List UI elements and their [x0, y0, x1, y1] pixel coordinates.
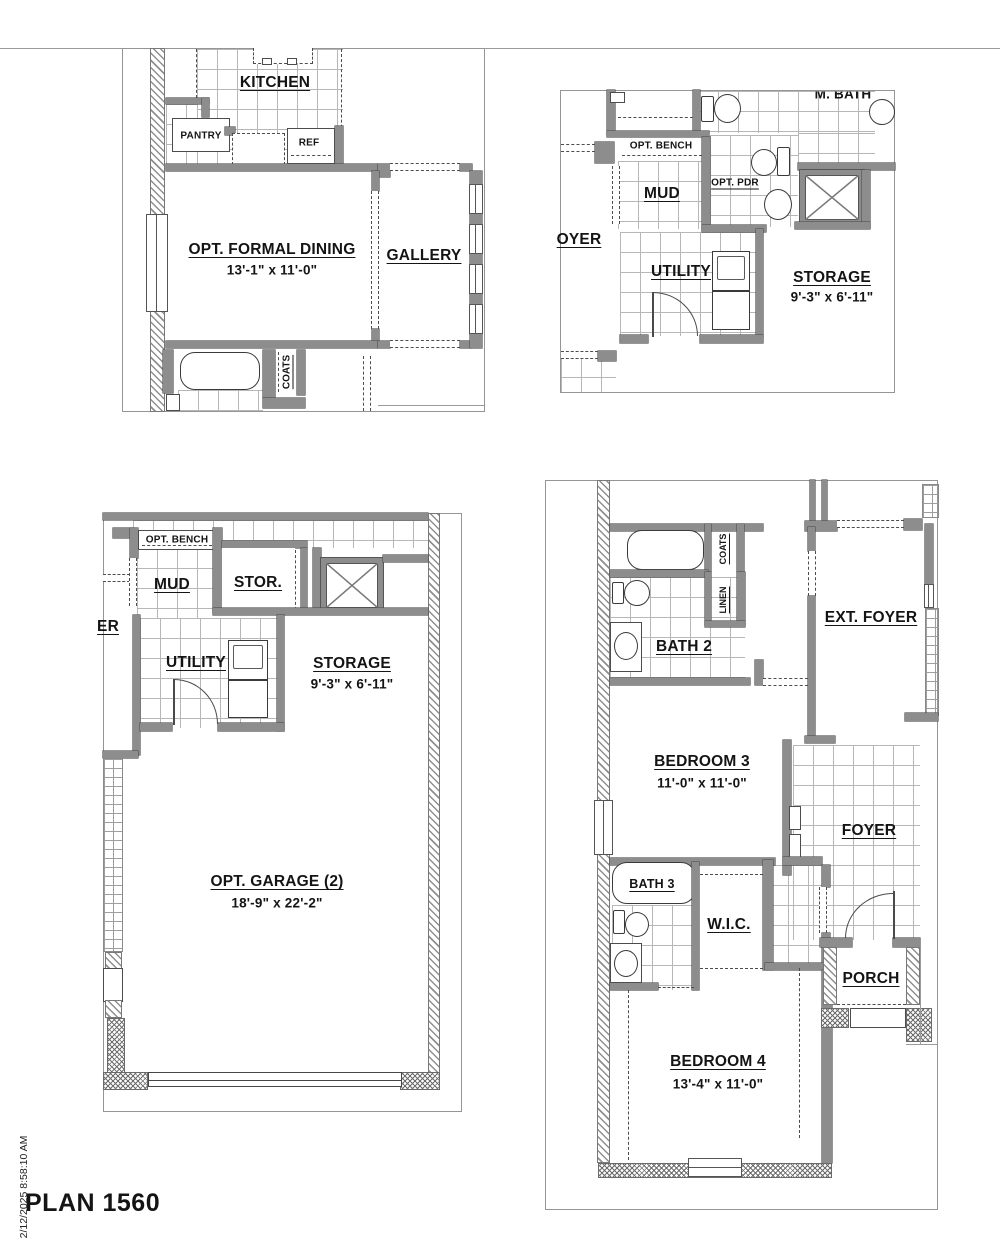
- wall: [202, 98, 209, 117]
- window: [469, 224, 483, 254]
- garage-dims: 18'-9" x 22'-2": [231, 896, 322, 911]
- cased-opening: [390, 163, 460, 171]
- wall: [862, 170, 870, 228]
- cased-opening: [561, 144, 595, 152]
- window: [146, 214, 168, 312]
- wall: [905, 713, 938, 721]
- wall: [378, 164, 390, 177]
- shower: [321, 558, 383, 613]
- bath2-label: BATH 2: [656, 638, 712, 656]
- garage-door: [148, 1072, 402, 1087]
- toilet-tank: [777, 147, 790, 176]
- kitchen-label: KITCHEN: [240, 74, 310, 92]
- cased-opening: [561, 351, 598, 359]
- opt-bench-label: OPT. BENCH: [630, 141, 693, 152]
- toilet-bowl: [751, 149, 777, 176]
- stor-label: STOR.: [234, 574, 282, 592]
- wall: [822, 480, 827, 522]
- dashed-door: [295, 550, 296, 610]
- wall: [610, 678, 750, 685]
- island-seat: [287, 58, 297, 65]
- porch-wall-hatch: [906, 947, 920, 1005]
- wall: [297, 350, 305, 395]
- washer-door: [717, 256, 745, 280]
- bedroom3-dims: 11'-0" x 11'-0": [657, 776, 747, 791]
- toilet-bowl: [624, 580, 650, 606]
- wall: [702, 137, 710, 229]
- refrigerator-label: REF: [299, 138, 320, 149]
- storage-dims: 9'-3" x 6'-11": [311, 677, 394, 692]
- dashed-line: [196, 49, 197, 98]
- dashed-line: [658, 987, 694, 988]
- dashed-line: [799, 968, 800, 1138]
- plan-title: PLAN 1560: [25, 1189, 160, 1218]
- wall: [103, 751, 138, 758]
- washer: [712, 251, 750, 291]
- pedestal-sink: [764, 189, 792, 220]
- washer: [228, 640, 268, 680]
- wall: [893, 938, 920, 947]
- wall: [925, 524, 933, 584]
- wall: [103, 513, 428, 520]
- wall: [378, 341, 390, 348]
- window-wall: [922, 484, 939, 518]
- sink: [614, 632, 638, 660]
- mud-label: MUD: [644, 185, 680, 203]
- cased-opening: [103, 574, 130, 582]
- wall: [705, 572, 711, 625]
- bedroom4-label: BEDROOM 4: [670, 1053, 766, 1071]
- bath3-label: BATH 3: [629, 877, 674, 891]
- wall: [763, 860, 773, 970]
- wall: [795, 222, 870, 229]
- wall: [213, 528, 222, 612]
- door-leaf: [173, 679, 175, 725]
- wall: [263, 350, 275, 398]
- window: [688, 1158, 742, 1177]
- wall: [213, 608, 428, 615]
- masonry-wall: [821, 1008, 849, 1028]
- door-leaf: [893, 891, 895, 939]
- cased-opening: [837, 520, 904, 528]
- wall: [620, 335, 648, 343]
- wall: [692, 862, 699, 990]
- wall: [798, 163, 895, 170]
- dashed-line: [700, 874, 763, 875]
- wall: [598, 351, 616, 361]
- toilet-tank: [701, 96, 714, 122]
- wall: [218, 723, 284, 731]
- wic-label: W.I.C.: [707, 916, 750, 934]
- masonry-wall: [906, 1008, 932, 1042]
- window: [469, 184, 483, 214]
- wall: [277, 615, 284, 731]
- wall: [904, 519, 922, 530]
- masonry-wall: [400, 1072, 440, 1090]
- window-wall: [925, 608, 939, 716]
- tile-floor: [178, 390, 263, 411]
- tile-floor: [561, 357, 616, 392]
- bedroom3-label: BEDROOM 3: [654, 753, 750, 771]
- wall: [783, 857, 822, 865]
- wall: [133, 615, 140, 755]
- floor-plan-sheet: KITCHEN PANTRY REF OPT. FORMAL DINING 13…: [0, 0, 1000, 1250]
- wall: [700, 335, 763, 343]
- cased-opening: [371, 191, 379, 329]
- utility-label: UTILITY: [166, 654, 226, 672]
- toilet-tank: [613, 910, 625, 934]
- wall: [810, 480, 815, 522]
- window: [469, 304, 483, 334]
- wall: [460, 164, 472, 171]
- sink: [869, 99, 895, 125]
- linen-label: LINEN: [718, 587, 728, 614]
- bench-dashed-line: [622, 155, 702, 156]
- wall: [263, 398, 305, 408]
- wall: [335, 126, 343, 166]
- door-opening: [808, 551, 816, 596]
- closet-door: [789, 806, 801, 830]
- shower-x-icon: [805, 175, 859, 220]
- wall: [808, 596, 815, 738]
- print-timestamp: 2/12/2025 8:58:10 AM: [18, 1127, 30, 1247]
- cased-opening: [612, 166, 620, 224]
- storage-label: STORAGE: [313, 655, 391, 673]
- wall: [222, 541, 307, 548]
- garage-label: OPT. GARAGE (2): [210, 873, 343, 891]
- storage-label: STORAGE: [793, 269, 871, 287]
- wall: [737, 524, 744, 572]
- cased-opening: [390, 340, 460, 348]
- cased-opening: [129, 558, 137, 606]
- foyer-label: ER: [97, 618, 119, 636]
- porch-edge-dashed: [837, 1004, 906, 1005]
- mud-label: MUD: [154, 576, 190, 594]
- wall: [808, 527, 815, 551]
- cased-opening: [763, 678, 808, 686]
- wall: [822, 865, 830, 887]
- dashed-line: [628, 990, 629, 1160]
- shelf-line: [618, 117, 693, 118]
- floor-line: [906, 1044, 938, 1045]
- toilet-tank: [612, 582, 624, 604]
- door-leaf: [652, 292, 654, 337]
- utility-label: UTILITY: [651, 263, 711, 281]
- wall-line: [920, 947, 921, 1044]
- kitchen-counter: [232, 133, 285, 165]
- wall: [737, 572, 745, 625]
- opt-pdr-label: OPT. PDR: [711, 178, 759, 189]
- cabinet: [166, 394, 180, 411]
- closet-door: [789, 834, 801, 858]
- wall: [140, 723, 172, 731]
- wall: [130, 528, 138, 558]
- wall: [820, 938, 852, 947]
- exterior-wall-hatch: [428, 513, 440, 1090]
- porch-wall-hatch: [823, 947, 837, 1005]
- wall: [372, 171, 379, 191]
- cased-opening: [363, 356, 371, 411]
- cabinet: [610, 92, 625, 103]
- window: [594, 800, 613, 855]
- wall: [756, 229, 763, 337]
- floor-line: [378, 405, 485, 406]
- shower-x-icon: [326, 563, 378, 608]
- wall: [383, 555, 428, 562]
- island-seat: [262, 58, 272, 65]
- masonry-wall: [103, 1072, 148, 1090]
- wall: [610, 570, 708, 577]
- pantry-label: PANTRY: [180, 131, 221, 142]
- bedroom4-dims: 13'-4" x 11'-0": [673, 1077, 764, 1092]
- wall: [705, 524, 711, 572]
- toilet-bowl: [625, 912, 649, 937]
- toilet-bowl: [714, 94, 741, 123]
- washer-door: [233, 645, 263, 669]
- bathtub: [180, 352, 260, 390]
- wall: [595, 142, 614, 163]
- window-wall: [103, 758, 123, 952]
- coats-label: COATS: [282, 355, 293, 389]
- bathtub: [627, 530, 704, 570]
- gallery-label: GALLERY: [387, 247, 462, 265]
- shower: [800, 170, 864, 225]
- foyer-label: FOYER: [842, 822, 896, 840]
- dashed-line: [291, 155, 331, 156]
- wall: [313, 548, 321, 614]
- ext-foyer-label: EXT. FOYER: [825, 609, 917, 627]
- window: [469, 264, 483, 294]
- wall: [163, 350, 173, 393]
- foyer-label: OYER: [557, 231, 602, 249]
- wall: [166, 164, 378, 171]
- dashed-line: [278, 352, 279, 392]
- opt-bench-label: OPT. BENCH: [146, 535, 209, 546]
- dining-dims: 13'-1" x 11'-0": [227, 263, 318, 278]
- dryer: [712, 291, 750, 330]
- wall: [166, 341, 378, 348]
- coats-label: COATS: [718, 534, 728, 565]
- wall: [607, 131, 709, 137]
- porch-step: [850, 1008, 906, 1028]
- wall: [705, 621, 745, 627]
- dining-label: OPT. FORMAL DINING: [189, 241, 356, 259]
- m-bath-label: M. BATH: [815, 87, 872, 102]
- wall: [755, 660, 763, 685]
- sink: [614, 950, 638, 977]
- wall: [805, 736, 835, 743]
- tile-floor: [798, 133, 875, 167]
- window: [924, 584, 934, 608]
- storage-dims: 9'-3" x 6'-11": [791, 290, 874, 305]
- cased-opening: [819, 887, 827, 933]
- door-opening: [103, 968, 123, 1002]
- wall: [693, 90, 700, 133]
- porch-label: PORCH: [843, 970, 900, 988]
- masonry-wall: [107, 1018, 125, 1076]
- exterior-wall-hatch: [105, 1000, 122, 1018]
- wall: [301, 548, 307, 612]
- dryer: [228, 680, 268, 718]
- dashed-line: [700, 968, 763, 969]
- wall: [610, 983, 658, 990]
